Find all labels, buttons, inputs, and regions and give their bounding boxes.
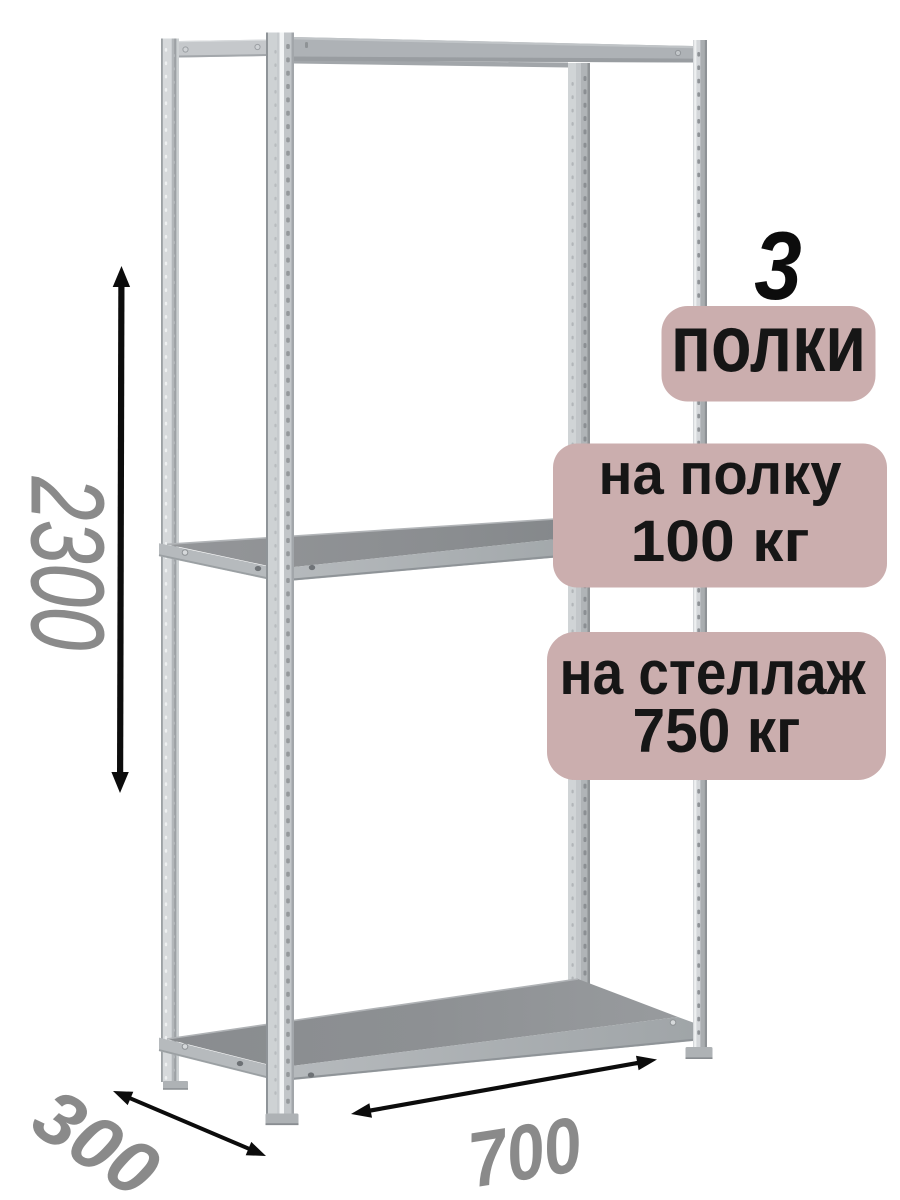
svg-text:300: 300 <box>18 1072 173 1200</box>
svg-text:на полку: на полку <box>599 442 842 507</box>
svg-text:700: 700 <box>463 1100 587 1200</box>
svg-text:100 кг: 100 кг <box>631 509 810 574</box>
svg-text:2300: 2300 <box>10 476 125 650</box>
svg-text:полки: полки <box>671 298 866 389</box>
svg-text:750 кг: 750 кг <box>633 697 801 766</box>
